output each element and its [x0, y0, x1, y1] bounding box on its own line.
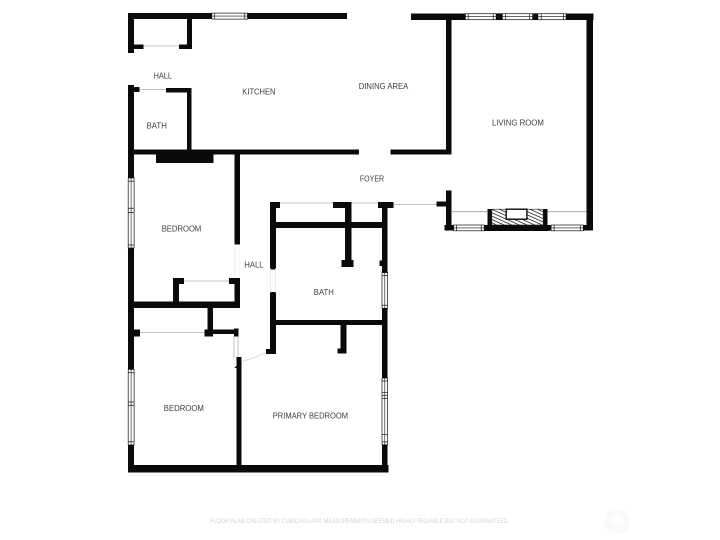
- svg-text:BEDROOM: BEDROOM: [164, 403, 204, 413]
- svg-text:BEDROOM: BEDROOM: [162, 224, 202, 234]
- svg-text:PRIMARY BEDROOM: PRIMARY BEDROOM: [273, 411, 348, 421]
- svg-text:KITCHEN: KITCHEN: [242, 87, 275, 97]
- svg-text:HALL: HALL: [154, 70, 173, 80]
- svg-text:HALL: HALL: [244, 260, 263, 270]
- svg-text:FOYER: FOYER: [360, 174, 384, 184]
- svg-text:BATH: BATH: [314, 287, 334, 297]
- svg-text:LIVING ROOM: LIVING ROOM: [492, 118, 544, 128]
- svg-text:DINING AREA: DINING AREA: [359, 81, 409, 91]
- svg-text:FLOOR PLAN CREATED BY CUBICASA: FLOOR PLAN CREATED BY CUBICASA APP. MEAS…: [210, 518, 509, 525]
- svg-text:BATH: BATH: [147, 120, 167, 130]
